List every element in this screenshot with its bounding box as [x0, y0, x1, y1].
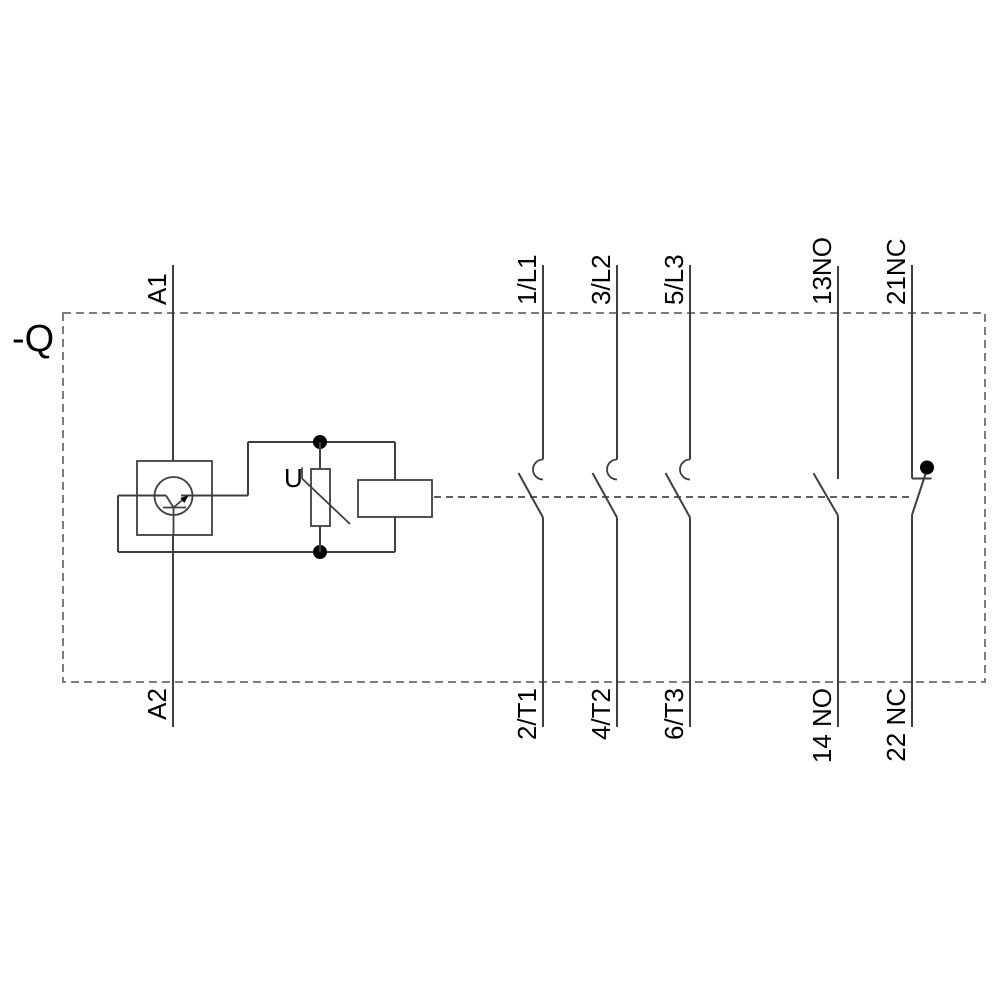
terminal-label-3l2: 3/L2 [586, 254, 616, 305]
schematic-page: -Q A1 A2 U [0, 0, 1000, 1000]
device-label: -Q [12, 318, 54, 360]
nc-pivot-dot [920, 461, 934, 475]
terminal-label-2t1: 2/T1 [512, 688, 542, 740]
contactor-schematic: -Q A1 A2 U [0, 0, 1000, 1000]
terminal-label-a2: A2 [142, 688, 172, 720]
terminal-label-5l3: 5/L3 [659, 254, 689, 305]
terminal-label-13no: 13NO [807, 237, 837, 305]
terminal-label-22nc: 22 NC [881, 688, 911, 762]
terminal-label-14no: 14 NO [807, 688, 837, 763]
terminal-label-21nc: 21NC [881, 239, 911, 305]
terminal-label-a1: A1 [142, 273, 172, 305]
terminal-label-1l1: 1/L1 [512, 254, 542, 305]
terminal-label-6t3: 6/T3 [659, 688, 689, 740]
terminal-label-4t2: 4/T2 [586, 688, 616, 740]
suppressor-label: U [284, 463, 303, 493]
